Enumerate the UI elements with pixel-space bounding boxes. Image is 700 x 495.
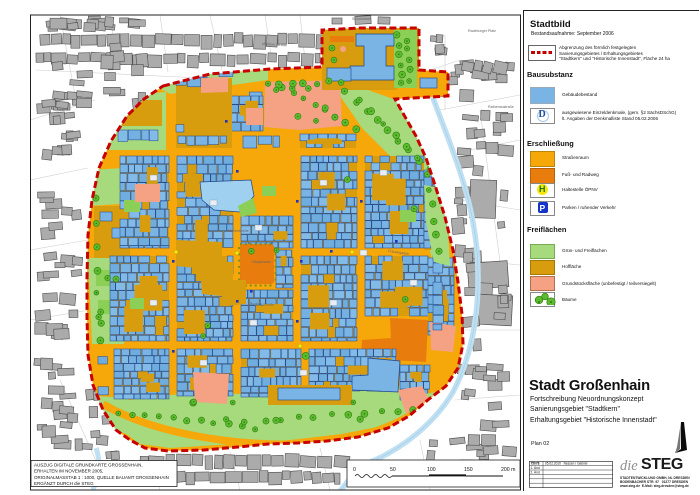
svg-text:2. Änd: 2. Änd	[531, 470, 540, 474]
svg-text:75078: 75078	[531, 462, 540, 466]
svg-text:50: 50	[390, 467, 396, 473]
svg-text:150: 150	[464, 467, 473, 473]
svg-text:Rathenaustraße: Rathenaustraße	[488, 105, 514, 109]
svg-text:05.02.2010 Nessen / Gabriel: 05.02.2010 Nessen / Gabriel	[545, 462, 588, 466]
svg-text:ORIGINALMASSTAB 1 : 1000, QUEL: ORIGINALMASSTAB 1 : 1000, QUELLE BAUAMT …	[34, 475, 169, 480]
svg-text:AUSZUG DIGITALE GRUNDKARTE GRO: AUSZUG DIGITALE GRUNDKARTE GROSSENHAIN,	[34, 463, 143, 468]
svg-text:Hauptmarkt: Hauptmarkt	[252, 260, 271, 264]
svg-text:200 m: 200 m	[501, 467, 515, 473]
svg-text:0: 0	[353, 467, 356, 473]
svg-text:Schulstraße: Schulstraße	[352, 17, 371, 21]
svg-text:Berliner Straße: Berliner Straße	[250, 302, 274, 307]
svg-text:100: 100	[427, 467, 436, 473]
svg-text:Radeburger Platz: Radeburger Platz	[468, 29, 496, 33]
svg-text:ERGÄNZT DURCH die STEG: ERGÄNZT DURCH die STEG	[34, 480, 94, 486]
svg-text:ERHALTEN IM NOVEMBER 2005,: ERHALTEN IM NOVEMBER 2005,	[34, 469, 103, 474]
svg-text:1. Änd: 1. Änd	[531, 466, 540, 470]
svg-text:Marienkirche: Marienkirche	[228, 229, 249, 233]
